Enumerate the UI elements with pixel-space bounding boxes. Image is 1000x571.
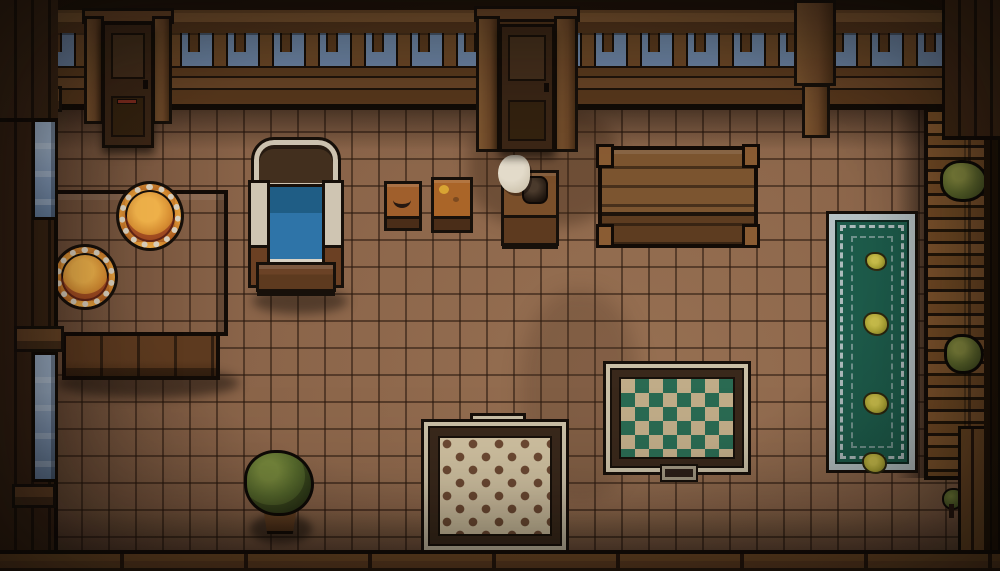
window-lower-left bbox=[32, 352, 58, 482]
top-left-corner-post bbox=[0, 0, 58, 122]
bush-icon bbox=[944, 334, 984, 374]
center-post-foot bbox=[802, 84, 830, 138]
dining-table-front bbox=[62, 336, 220, 380]
flower-icon bbox=[863, 312, 889, 336]
cloth-icon bbox=[498, 155, 530, 193]
flower-icon bbox=[862, 452, 887, 474]
door-panel bbox=[111, 33, 145, 79]
crate-table[interactable] bbox=[384, 181, 422, 231]
bottom-wall bbox=[0, 550, 1000, 571]
door-left[interactable] bbox=[102, 22, 154, 148]
crate-table[interactable] bbox=[431, 177, 473, 233]
game-viewport bbox=[0, 0, 1000, 571]
green-runner-rug bbox=[826, 211, 918, 473]
door-frame-post bbox=[152, 16, 172, 124]
door-frame-post bbox=[554, 16, 578, 152]
wall-bracket bbox=[14, 326, 64, 352]
door-red-marker bbox=[117, 99, 137, 104]
food-plate[interactable] bbox=[119, 184, 181, 248]
door-panel bbox=[508, 35, 546, 81]
center-post bbox=[794, 0, 836, 86]
door-frame-post bbox=[476, 16, 500, 152]
door-knob-icon bbox=[544, 83, 549, 92]
table-leg bbox=[742, 224, 760, 248]
door-center[interactable] bbox=[499, 24, 555, 152]
food-plate[interactable] bbox=[55, 247, 115, 307]
diamond-rug-tab bbox=[662, 466, 696, 480]
long-table[interactable] bbox=[598, 146, 758, 248]
checkered-rug bbox=[424, 422, 566, 550]
flower-icon bbox=[865, 252, 887, 271]
table-leg bbox=[596, 144, 614, 168]
wall-bracket bbox=[12, 484, 56, 508]
bed-footboard bbox=[256, 262, 336, 292]
table-leg bbox=[596, 224, 614, 248]
potted-plant[interactable] bbox=[244, 450, 314, 516]
door-knob-icon bbox=[143, 80, 148, 89]
flower-icon bbox=[863, 392, 889, 415]
bed[interactable] bbox=[248, 140, 344, 298]
door-frame-post bbox=[84, 16, 104, 124]
door-panel bbox=[508, 100, 546, 141]
top-right-corner-post bbox=[942, 0, 1000, 140]
table-leg bbox=[742, 144, 760, 168]
diamond-rug bbox=[606, 364, 748, 472]
window-upper-left bbox=[32, 118, 58, 220]
bush-icon bbox=[940, 160, 988, 202]
